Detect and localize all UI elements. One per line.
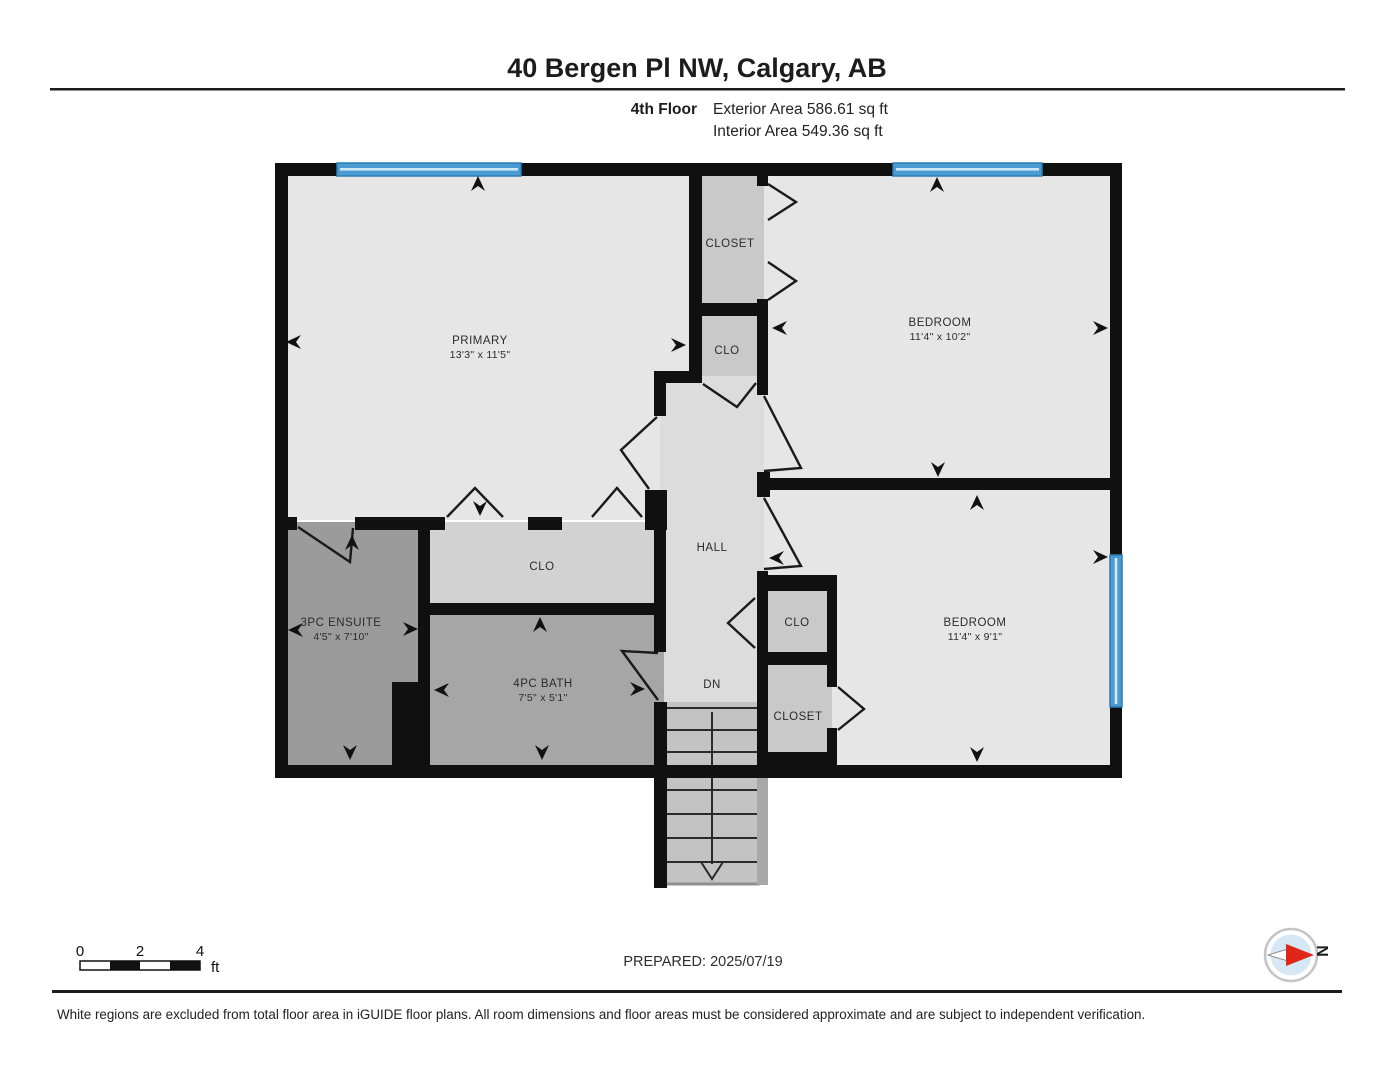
room-label-hall: HALL bbox=[697, 542, 728, 554]
room-label-clo-primary: CLO bbox=[529, 561, 554, 573]
footer-divider bbox=[52, 990, 1342, 993]
stairs-dn-label: DN bbox=[703, 679, 721, 691]
floor-label: 4th Floor bbox=[631, 101, 697, 118]
room-label-closet-top: CLOSET bbox=[705, 238, 754, 250]
room-dims-bath: 7'5" x 5'1" bbox=[518, 692, 567, 704]
scale-tick-2: 2 bbox=[136, 943, 144, 960]
ensuite-void-block bbox=[392, 682, 422, 765]
header-divider bbox=[50, 88, 1345, 91]
closet-bedroom2-floor bbox=[762, 660, 832, 758]
floorplan-page: 40 Bergen Pl NW, Calgary, AB 4th Floor E… bbox=[0, 0, 1396, 1080]
room-label-bedroom2: BEDROOM bbox=[944, 617, 1007, 629]
room-dims-primary: 13'3" x 11'5" bbox=[450, 349, 511, 361]
window-bedroom2 bbox=[1110, 555, 1122, 707]
stairwell-side-strip bbox=[757, 777, 768, 885]
window-primary bbox=[337, 163, 521, 176]
room-label-closet-bedroom2: CLOSET bbox=[773, 711, 822, 723]
window-bedroom1 bbox=[893, 163, 1042, 176]
clo-mid-floor bbox=[696, 310, 764, 376]
exterior-area-label: Exterior Area 586.61 sq ft bbox=[713, 101, 889, 118]
room-dims-bedroom1: 11'4" x 10'2" bbox=[910, 331, 971, 343]
bath-floor bbox=[424, 609, 664, 771]
room-label-primary: PRIMARY bbox=[452, 335, 508, 347]
compass-icon: N bbox=[1265, 929, 1330, 981]
scale-unit-label: ft bbox=[211, 959, 220, 976]
prepared-date-label: PREPARED: 2025/07/19 bbox=[623, 954, 782, 970]
compass-north-label: N bbox=[1313, 945, 1330, 957]
floorplan-canvas: 40 Bergen Pl NW, Calgary, AB 4th Floor E… bbox=[0, 0, 1396, 1080]
room-dims-bedroom2: 11'4" x 9'1" bbox=[948, 631, 1003, 643]
room-label-bath: 4PC BATH bbox=[513, 678, 572, 690]
footer-disclaimer: White regions are excluded from total fl… bbox=[57, 1007, 1145, 1022]
room-label-bedroom1: BEDROOM bbox=[909, 317, 972, 329]
page-title: 40 Bergen Pl NW, Calgary, AB bbox=[507, 53, 887, 83]
scale-tick-4: 4 bbox=[196, 943, 204, 960]
scale-tick-0: 0 bbox=[76, 943, 84, 960]
room-label-clo-hall: CLO bbox=[784, 617, 809, 629]
staircase bbox=[662, 702, 768, 885]
room-dims-ensuite: 4'5" x 7'10" bbox=[313, 631, 368, 643]
room-label-clo-mid: CLO bbox=[714, 345, 739, 357]
scale-bar: 0 2 4 ft bbox=[76, 943, 220, 976]
room-label-ensuite: 3PC ENSUITE bbox=[301, 617, 382, 629]
interior-area-label: Interior Area 549.36 sq ft bbox=[713, 123, 883, 140]
